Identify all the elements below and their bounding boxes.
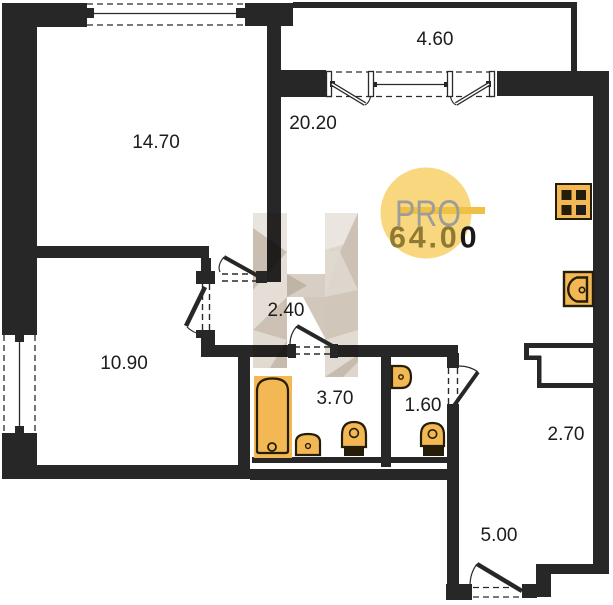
svg-text:10.90: 10.90 (100, 353, 148, 374)
svg-text:64.00: 64.00 (389, 221, 479, 255)
svg-text:4.60: 4.60 (417, 29, 454, 50)
svg-text:20.20: 20.20 (289, 113, 337, 134)
svg-text:5.00: 5.00 (481, 525, 518, 546)
svg-text:3.70: 3.70 (317, 388, 354, 409)
svg-text:1.60: 1.60 (405, 395, 442, 416)
svg-text:14.70: 14.70 (132, 132, 180, 153)
svg-text:2.40: 2.40 (268, 300, 305, 321)
svg-text:2.70: 2.70 (548, 424, 585, 445)
